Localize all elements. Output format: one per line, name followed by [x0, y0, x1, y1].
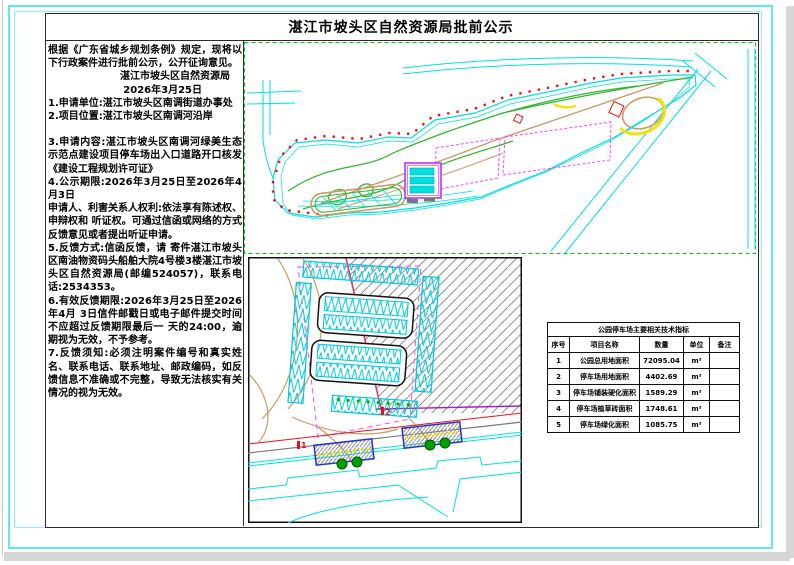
table-row: 5 停车场绿化面积 1085.75 m²: [548, 417, 740, 433]
table-row: 3 停车场铺装硬化面积 1589.29 m²: [548, 385, 740, 401]
notice-item-location: 2.项目位置:湛江市坡头区南调河沿岸: [48, 110, 242, 123]
cell-remark: [710, 417, 740, 433]
cell-unit: m²: [684, 369, 710, 385]
cell-unit: m²: [684, 417, 710, 433]
street-lines: [248, 413, 522, 523]
cell-remark: [710, 385, 740, 401]
notice-item-feedback-deadline: 6.有效反馈期限:2026年3月25日至2026年4月 3日信件邮戳日或电子邮件…: [48, 295, 242, 348]
cell-unit: m²: [684, 353, 710, 369]
parking-area-inset: [405, 163, 441, 203]
cell-no: 3: [548, 385, 570, 401]
cell-no: 4: [548, 401, 570, 417]
cell-remark: [710, 353, 740, 369]
cell-name: 停车场用地面积: [570, 369, 640, 385]
col-header-remark: 备注: [710, 337, 740, 353]
plan-green-frame: [245, 43, 756, 254]
paragraph-gap: [48, 123, 242, 136]
cell-unit: m²: [684, 401, 710, 417]
cell-name: 停车场植草砖面积: [570, 401, 640, 417]
green-landscape-paths: [288, 77, 693, 209]
col-header-name: 项目名称: [570, 337, 640, 353]
cell-no: 1: [548, 353, 570, 369]
table-header-row: 序号 项目名称 数量 单位 备注: [548, 337, 740, 353]
entrance-marker-1: 1: [301, 441, 307, 450]
table-row: 2 停车场用地面积 4402.69 m²: [548, 369, 740, 385]
page-title: 湛江市坡头区自然资源局批前公示: [45, 17, 757, 37]
notice-intro: 根据《广东省城乡规划条例》规定，现将以下行政案件进行批前公示，公开征询意见。: [48, 44, 242, 70]
cell-qty: 72095.04: [640, 353, 684, 369]
page-shadow-bottom: [4, 552, 790, 561]
notice-item-feedback-notes: 7.反馈须知:必须注明案件编号和真实姓名、联系电话、联系地址、邮政编码，如反馈信…: [48, 347, 242, 400]
cell-remark: [710, 369, 740, 385]
notice-issue-date: 2026年3月25日: [48, 84, 242, 97]
cell-qty: 1085.75: [640, 417, 684, 433]
parking-detail-drawing: 1 2: [248, 257, 522, 523]
red-structure-marks: [514, 101, 624, 123]
notice-item-period: 4.公示期限:2026年3月25日至2026年4月3日: [48, 176, 242, 202]
cell-name: 停车场铺装硬化面积: [570, 385, 640, 401]
indicator-table: 公园停车场主要相关技术指标 序号 项目名称 数量 单位 备注 1 公园总用地面积…: [547, 322, 740, 433]
notice-item-content: 3.申请内容:湛江市坡头区南调河绿美生态示范点建设项目停车场出入口道路开口核发《…: [48, 136, 242, 176]
cell-no: 5: [548, 417, 570, 433]
page-left-edge: [2, 0, 3, 556]
cell-qty: 1748.61: [640, 401, 684, 417]
site-plan-drawing: [243, 41, 757, 255]
cell-unit: m²: [684, 385, 710, 401]
notice-issuer: 湛江市坡头区自然资源局: [48, 70, 242, 83]
entrance-marker-2: 2: [385, 408, 391, 417]
cell-qty: 4402.69: [640, 369, 684, 385]
cell-no: 2: [548, 369, 570, 385]
table-row: 1 公园总用地面积 72095.04 m²: [548, 353, 740, 369]
page-shadow-right: [786, 6, 794, 558]
col-header-no: 序号: [548, 337, 570, 353]
col-header-unit: 单位: [684, 337, 710, 353]
table-title: 公园停车场主要相关技术指标: [548, 323, 740, 337]
table-row: 4 停车场植草砖面积 1748.61 m²: [548, 401, 740, 417]
cell-qty: 1589.29: [640, 385, 684, 401]
notice-text-column: 根据《广东省城乡规划条例》规定，现将以下行政案件进行批前公示，公开征询意见。 湛…: [48, 44, 242, 400]
cell-remark: [710, 401, 740, 417]
cell-name: 停车场绿化面积: [570, 417, 640, 433]
col-header-qty: 数量: [640, 337, 684, 353]
notice-sheet: 湛江市坡头区自然资源局批前公示 根据《广东省城乡规划条例》规定，现将以下行政案件…: [0, 0, 794, 565]
notice-rights: 申请人、利害关系人权利:依法享有陈述权、申辩权和 听证权。可通过信函或网络的方式…: [48, 202, 242, 242]
cell-name: 公园总用地面积: [570, 353, 640, 369]
notice-item-feedback-method: 5.反馈方式:信函反馈，请 寄件湛江市坡头区南油物资码头船舶大院4号楼3楼湛江市…: [48, 242, 242, 295]
notice-item-applicant: 1.申请单位:湛江市坡头区南调街道办事处: [48, 97, 242, 110]
